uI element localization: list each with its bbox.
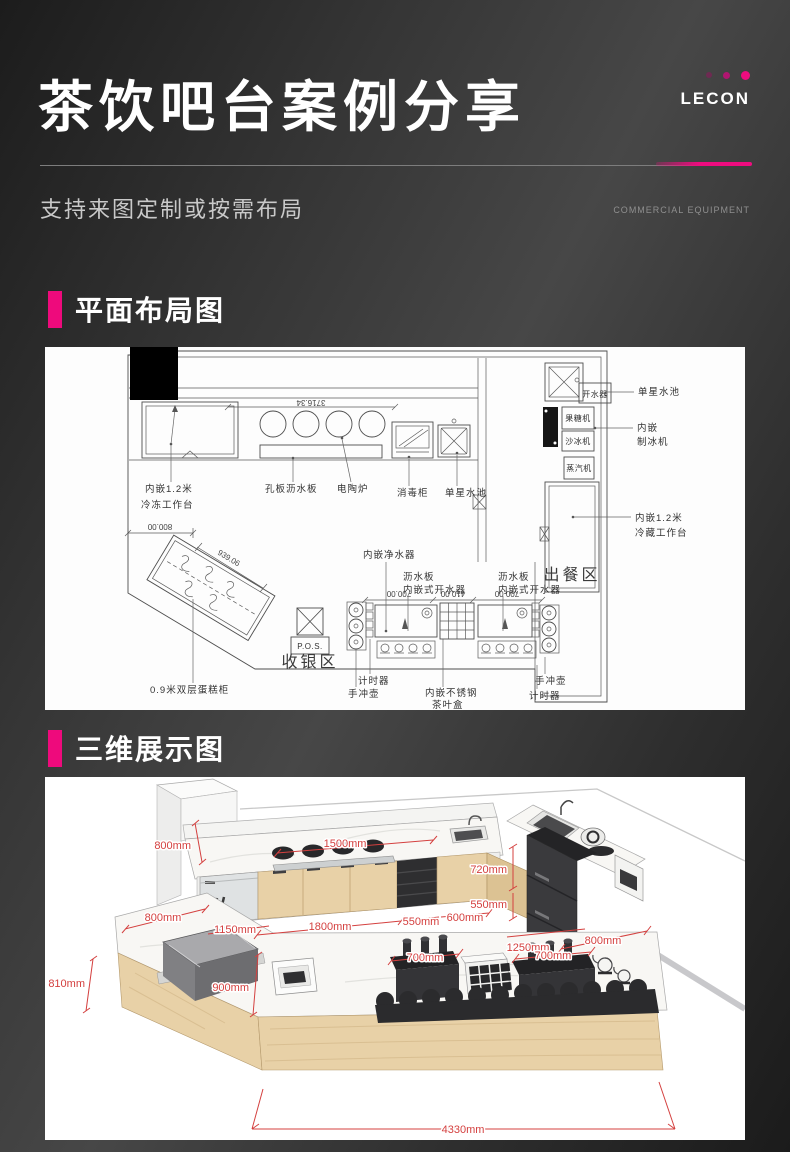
fp-label-disinfect: 消毒柜 [397,487,429,499]
r3-dim-left800: 800mm [145,912,182,924]
plan-console [347,597,559,658]
r3-front-counter [115,893,667,1070]
fp-label-drain-r: 沥水板 [498,571,530,583]
fp-label-ice2: 制冰机 [637,436,669,448]
fp-label-serving: 出餐区 [543,566,600,584]
fp-label-timer-l: 计时器 [358,675,390,687]
fp-dim-top: 3716.34 [296,398,325,407]
plan-ice-machine [543,407,558,447]
brand-name: LECON [681,89,751,109]
brand-tagline: COMMERCIAL EQUIPMENT [613,205,750,215]
fp-label-cake: 0.9米双层蛋糕柜 [150,684,229,696]
section-plan-header: 平面布局图 [48,289,225,329]
fp-label-boiler-r: 内嵌式开水器 [498,584,561,596]
plan-sink-topright [545,363,583,401]
fp-label-boiler-box: 开水器 [582,389,608,399]
r3-pos-recess [272,958,317,995]
page-title: 茶饮吧台案例分享 [38,62,526,142]
accent-bar [48,291,62,328]
fp-label-kettle-r: 手冲壶 [535,675,567,687]
subtitle: 支持来图定制或按需布局 [40,192,304,224]
fp-label-teabox1: 内嵌不锈钢 [425,687,478,699]
fp-label-ice1: 内嵌 [637,422,658,434]
fp-label-pos: P.O.S. [297,642,323,651]
fp-label-slush: 沙冰机 [565,436,591,446]
plan-walls [128,351,607,702]
r3-wood-end [437,853,487,904]
render3d-drawing: 800mm 1500mm 800mm 1150mm 1800mm 550mm 6… [45,777,745,1140]
r3-dim-4330: 4330mm [442,1124,485,1136]
plan-slush-box: 沙冰机 [562,431,594,451]
fp-label-fructose: 果糖机 [565,413,591,423]
fp-label-freezer1: 内嵌1.2米 [145,483,193,495]
page: 茶饮吧台案例分享 LECON 支持来图定制或按需布局 COMMERCIAL EQ… [0,0,790,1152]
plan-cake-display [147,535,275,640]
plan-pos: P.O.S. [291,608,329,654]
plan-freezer-table [142,402,238,458]
r3-dim-810: 810mm [48,978,85,990]
brand-logo: LECON [681,70,751,109]
r3-dim-1150: 1150mm [214,924,256,936]
r3-dim-550a: 550mm [403,916,440,928]
fp-dim-left: 800.00 [147,522,172,531]
plan-disinfect-cabinet [392,422,433,458]
divider-accent [656,162,752,166]
fp-label-purifier: 内嵌净水器 [363,549,416,561]
r3-dark-drawers [397,857,437,908]
r3-dim-back-h: 800mm [154,840,191,852]
brand-dots-icon [681,70,751,80]
fp-label-freezer2: 冷冻工作台 [141,499,194,511]
plan-boiler-box: 开水器 [579,383,611,403]
fp-label-steam: 蒸汽机 [566,463,592,473]
section-viz-header: 三维展示图 [48,728,225,768]
divider-line [40,165,750,166]
r3-dim-720: 720mm [470,864,507,876]
fp-label-stove: 电陶炉 [337,483,369,495]
plan-drainboard [260,445,382,458]
r3-dim-900: 900mm [212,982,249,994]
accent-bar [48,730,62,767]
floor-plan-panel: 开水器 果糖机 沙冰机 蒸汽机 P.O.S. 收银区 [45,347,745,710]
section-viz-title: 三维展示图 [75,728,225,768]
fp-label-drainboard: 孔板沥水板 [265,483,318,495]
plan-black-marker [130,347,178,400]
fp-label-kettle-l: 手冲壶 [348,688,380,700]
render3d-panel: 800mm 1500mm 800mm 1150mm 1800mm 550mm 6… [45,777,745,1140]
fp-label-cashier: 收银区 [281,653,338,671]
fp-dim-diag: 939.06 [216,548,242,569]
fp-label-timer-r: 计时器 [529,690,561,702]
fp-label-fridge1: 内嵌1.2米 [635,512,683,524]
plan-steam-box: 蒸汽机 [564,457,594,479]
r3-dim-550b: 550mm [470,899,507,911]
fp-label-boiler-l: 内嵌式开水器 [403,584,466,596]
plan-stove-burners [260,411,385,437]
r3-dim-700b: 700mm [535,950,572,962]
r3-dim-1500: 1500mm [324,838,367,850]
fp-label-drain-l: 沥水板 [403,571,435,583]
r3-dim-700a: 700mm [407,952,444,964]
r3-dim-800r: 800mm [585,935,622,947]
plan-fructose-box: 果糖机 [562,407,594,429]
fp-label-teabox2: 茶叶盒 [432,699,464,710]
r3-dim-600: 600mm [447,912,484,924]
fp-label-fridge2: 冷藏工作台 [635,527,688,539]
fp-label-sink-right: 单星水池 [638,386,680,398]
floor-plan-drawing: 开水器 果糖机 沙冰机 蒸汽机 P.O.S. 收银区 [45,347,745,710]
section-plan-title: 平面布局图 [75,289,225,329]
fp-label-sink-mid: 单星水池 [445,487,487,499]
plan-sink-mid [438,419,470,457]
plan-labels: 内嵌1.2米 冷冻工作台 孔板沥水板 电陶炉 消毒柜 单星水池 单星水池 内嵌 … [141,386,688,710]
r3-dim-1800: 1800mm [309,921,352,933]
